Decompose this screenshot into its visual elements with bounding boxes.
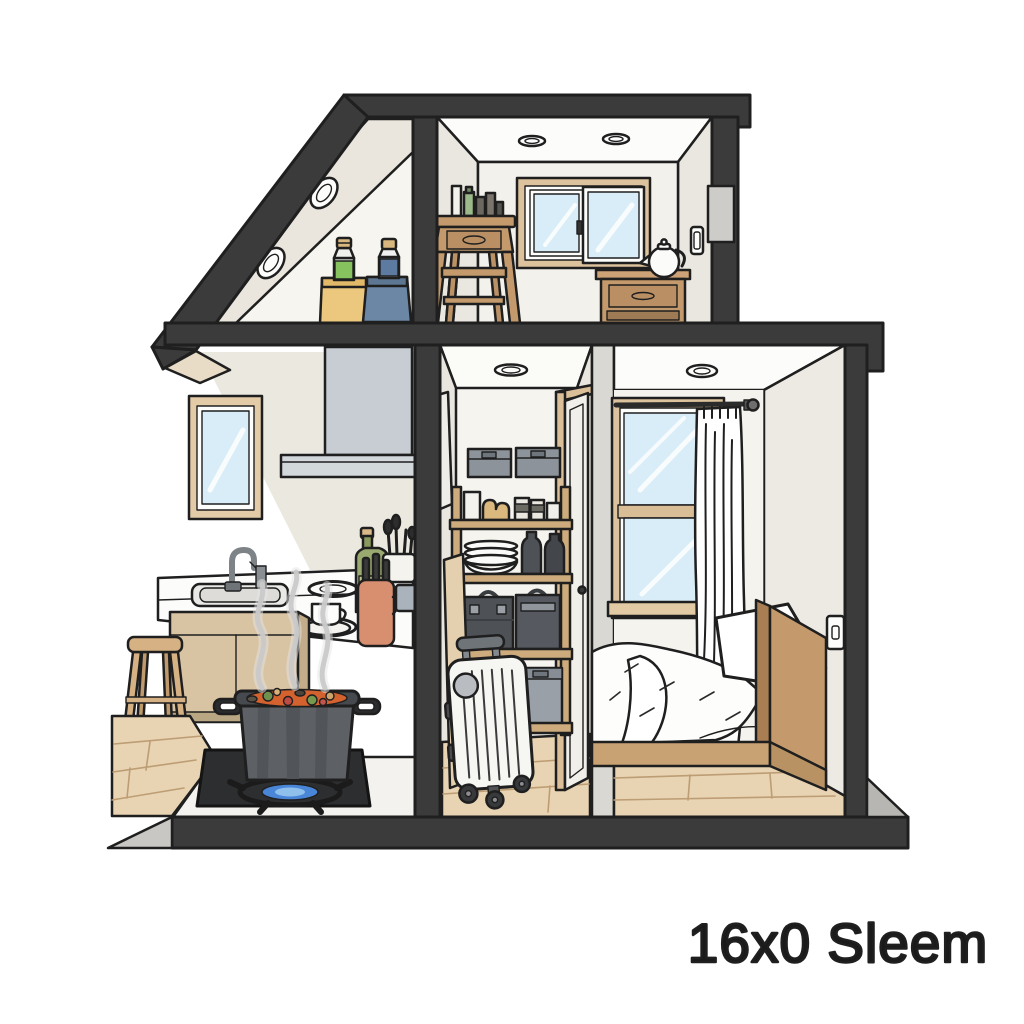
attic-divider-beam	[413, 117, 437, 323]
foundation-right-side	[867, 778, 908, 817]
upper-room-ceiling	[437, 117, 712, 162]
yellow-canister	[320, 278, 369, 323]
storage-bin	[468, 449, 511, 477]
kitchen	[112, 347, 424, 817]
foundation-left-curb	[108, 817, 172, 848]
wall-outlet-icon	[691, 227, 703, 254]
ground-right-wall	[845, 345, 867, 817]
suitcase-badge-icon	[453, 673, 479, 699]
caption-text: 16x0 Sleem	[688, 912, 988, 974]
kitchen-storage-beam	[415, 345, 440, 817]
light-switch-icon	[827, 616, 844, 649]
plate-stack	[465, 541, 517, 574]
green-bottle	[334, 238, 354, 280]
upper-window	[517, 178, 650, 268]
ceiling-light-icon	[495, 365, 527, 376]
door-handle-icon	[579, 587, 586, 594]
foundation	[172, 817, 908, 848]
storage-bin	[516, 448, 560, 477]
upper-room	[428, 117, 712, 323]
kitchen-window	[189, 396, 262, 519]
house-cutaway-illustration: 16x0 Sleem	[0, 0, 1024, 1024]
bedroom	[592, 345, 845, 817]
recessed-light-icon	[603, 134, 629, 144]
nightstand	[596, 270, 690, 323]
blue-canister	[363, 277, 411, 322]
ceiling-light-icon	[687, 365, 717, 377]
illustration-canvas: 16x0 Sleem	[0, 0, 1024, 1024]
storage-case	[516, 591, 560, 650]
recessed-light-icon	[519, 136, 545, 146]
wall-cut-notch	[708, 186, 734, 242]
storage-closet	[434, 345, 592, 817]
blue-bottle	[379, 239, 399, 278]
